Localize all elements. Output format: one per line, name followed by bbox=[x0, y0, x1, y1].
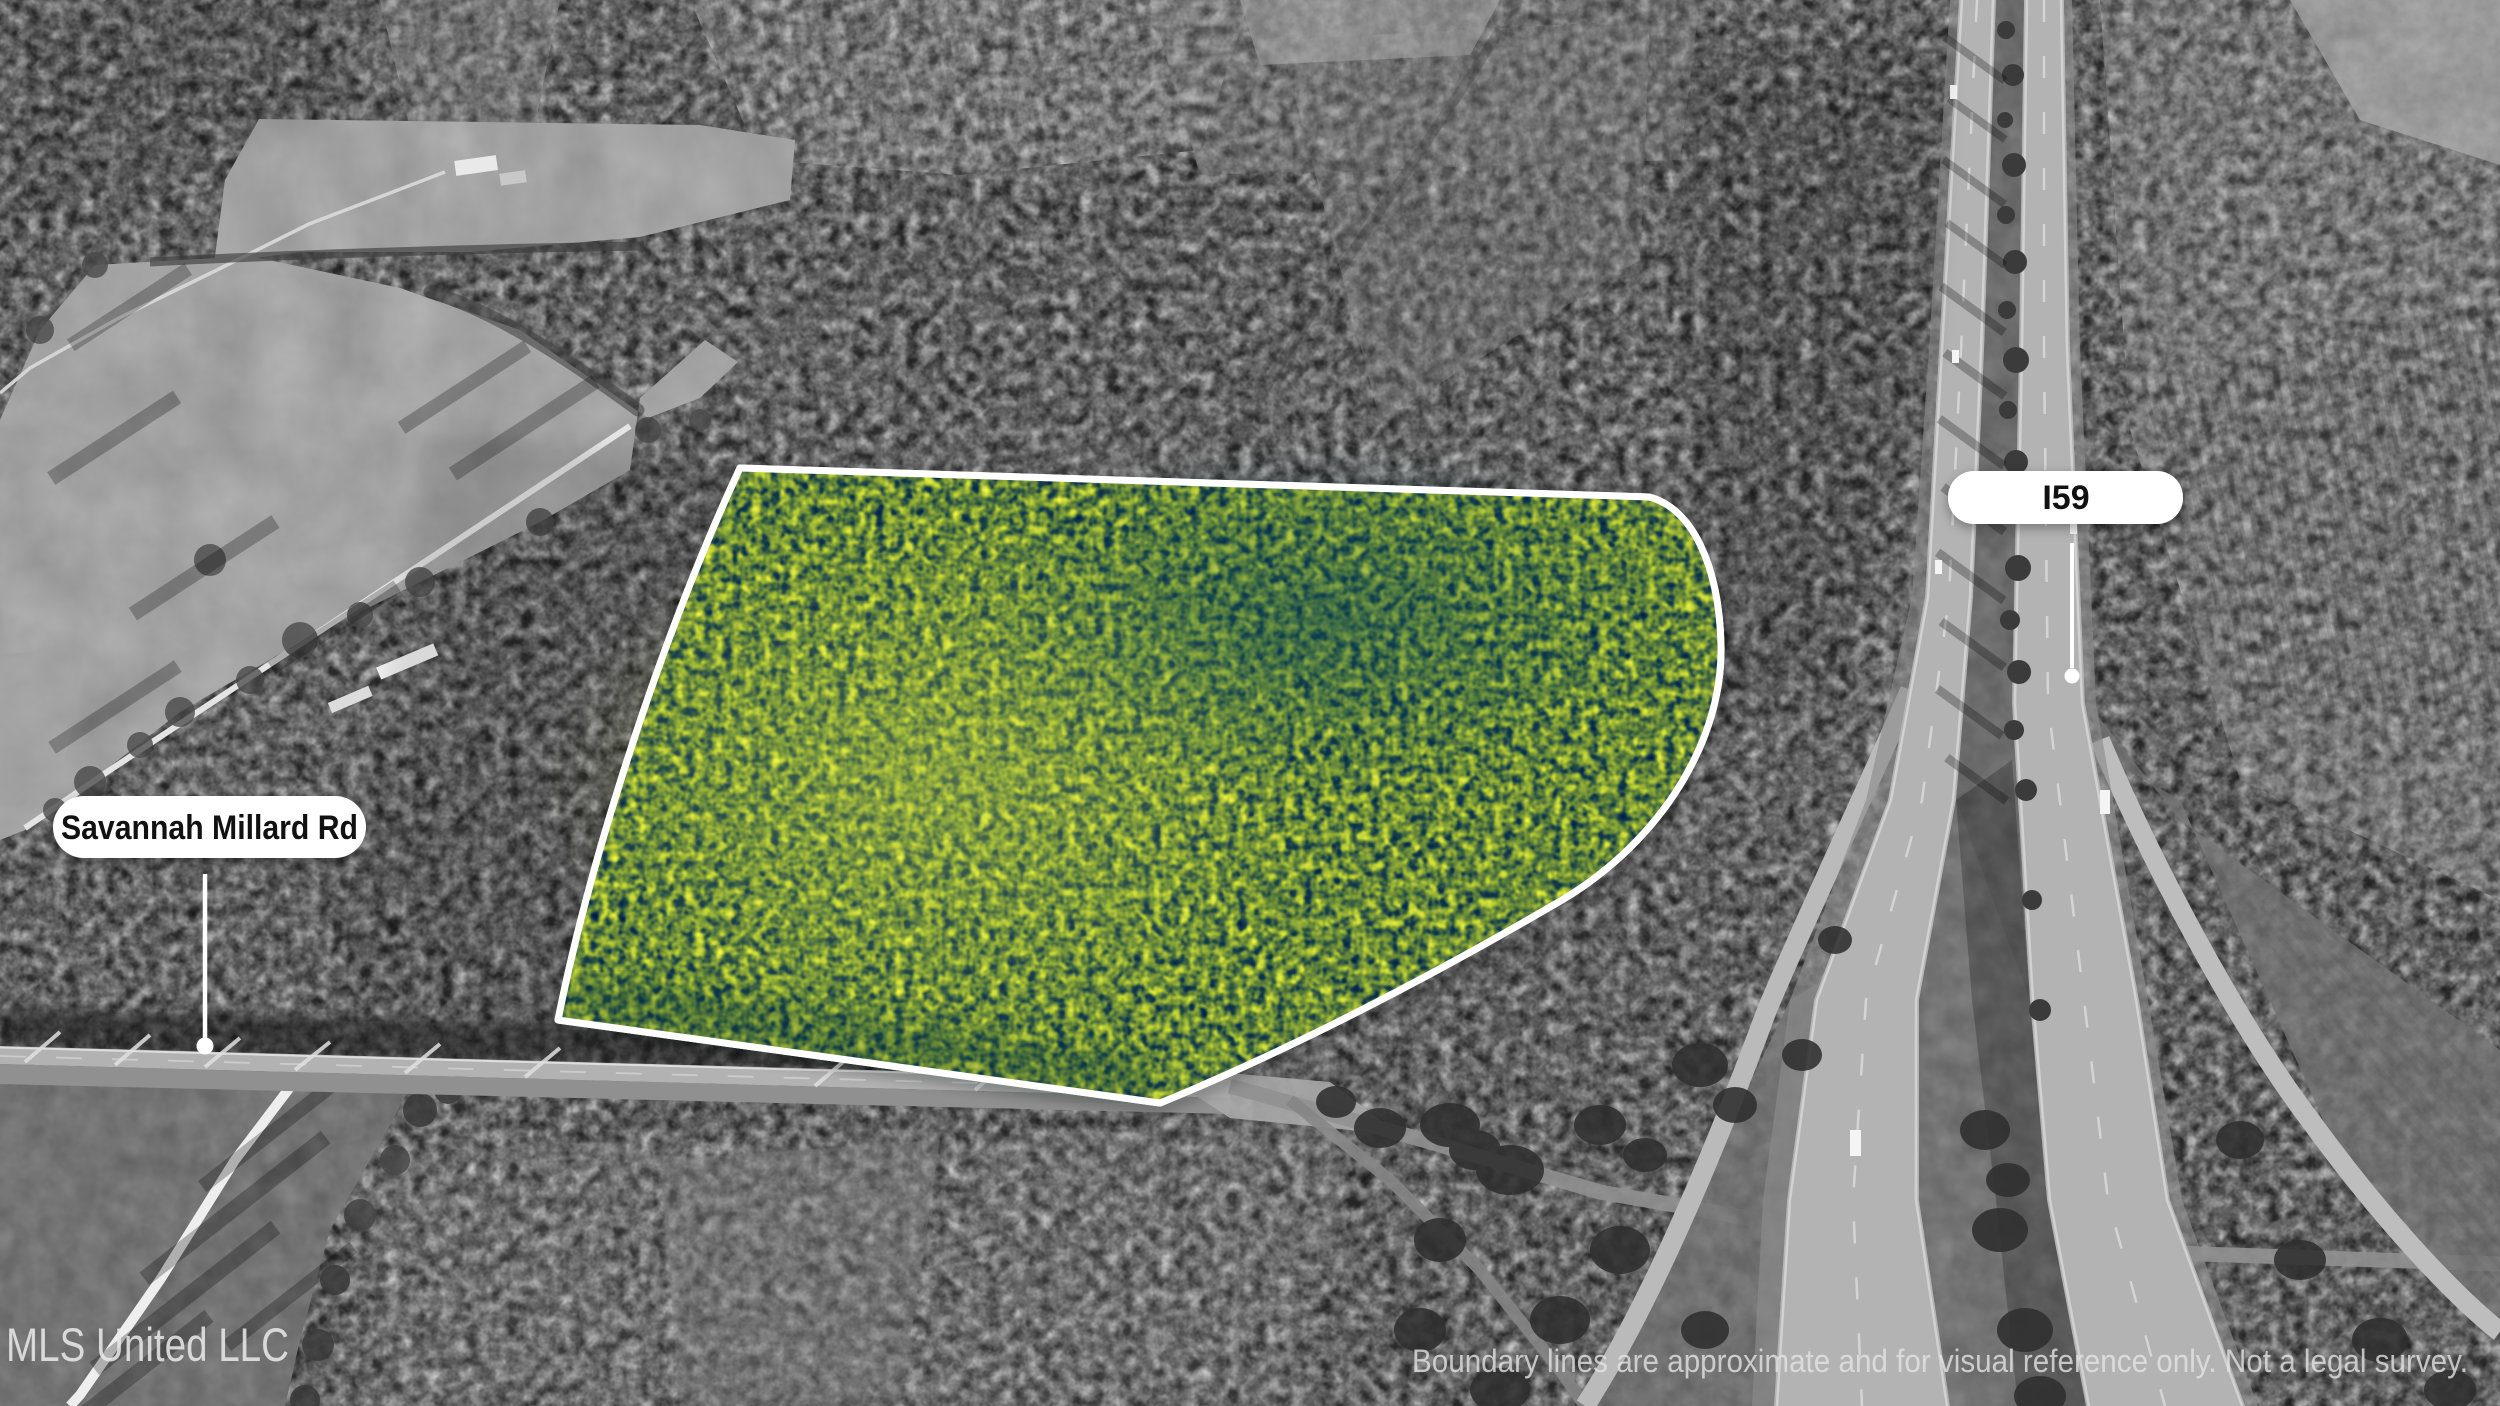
svg-text:Savannah Millard Rd: Savannah Millard Rd bbox=[61, 809, 358, 847]
svg-text:Boundary lines are approximate: Boundary lines are approximate and for v… bbox=[1412, 1343, 2468, 1379]
svg-text:MLS United LLC: MLS United LLC bbox=[6, 1318, 289, 1371]
svg-text:I59: I59 bbox=[2042, 479, 2089, 517]
